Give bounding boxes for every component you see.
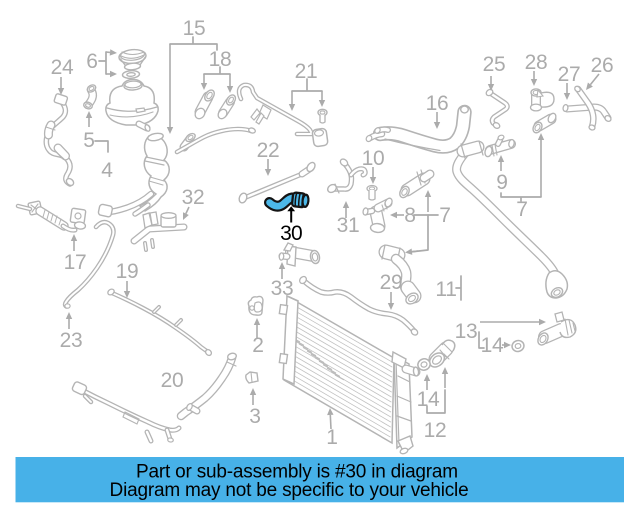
svg-text:16: 16	[426, 92, 449, 115]
svg-text:30: 30	[280, 222, 302, 245]
svg-text:20: 20	[161, 369, 184, 392]
svg-text:24: 24	[51, 56, 74, 79]
svg-text:11: 11	[435, 278, 456, 301]
svg-text:29: 29	[380, 271, 403, 294]
svg-text:12: 12	[424, 419, 447, 442]
svg-text:4: 4	[101, 159, 113, 182]
svg-text:2: 2	[252, 334, 263, 357]
svg-text:1: 1	[326, 426, 337, 449]
svg-text:Diagram may not be specific to: Diagram may not be specific to your vehi…	[110, 480, 469, 501]
svg-text:7: 7	[439, 204, 450, 227]
svg-text:23: 23	[60, 329, 83, 352]
svg-text:26: 26	[591, 54, 614, 77]
svg-text:10: 10	[362, 147, 385, 170]
svg-text:3: 3	[249, 405, 260, 428]
svg-text:13: 13	[455, 320, 478, 343]
svg-text:7: 7	[516, 198, 527, 221]
svg-text:14: 14	[417, 388, 440, 411]
svg-text:18: 18	[209, 48, 232, 71]
svg-text:17: 17	[64, 251, 87, 274]
svg-text:5: 5	[83, 129, 94, 152]
svg-text:22: 22	[257, 139, 280, 162]
svg-text:15: 15	[183, 17, 206, 40]
svg-text:19: 19	[116, 260, 139, 283]
svg-text:9: 9	[496, 171, 507, 194]
svg-text:6: 6	[86, 50, 97, 73]
svg-text:8: 8	[404, 204, 415, 227]
svg-text:32: 32	[182, 186, 205, 209]
svg-text:25: 25	[483, 53, 506, 76]
svg-text:28: 28	[525, 51, 548, 74]
svg-text:33: 33	[271, 277, 294, 300]
svg-text:31: 31	[337, 214, 360, 237]
svg-text:14: 14	[481, 334, 504, 357]
svg-text:27: 27	[558, 63, 581, 86]
svg-text:21: 21	[295, 60, 318, 83]
